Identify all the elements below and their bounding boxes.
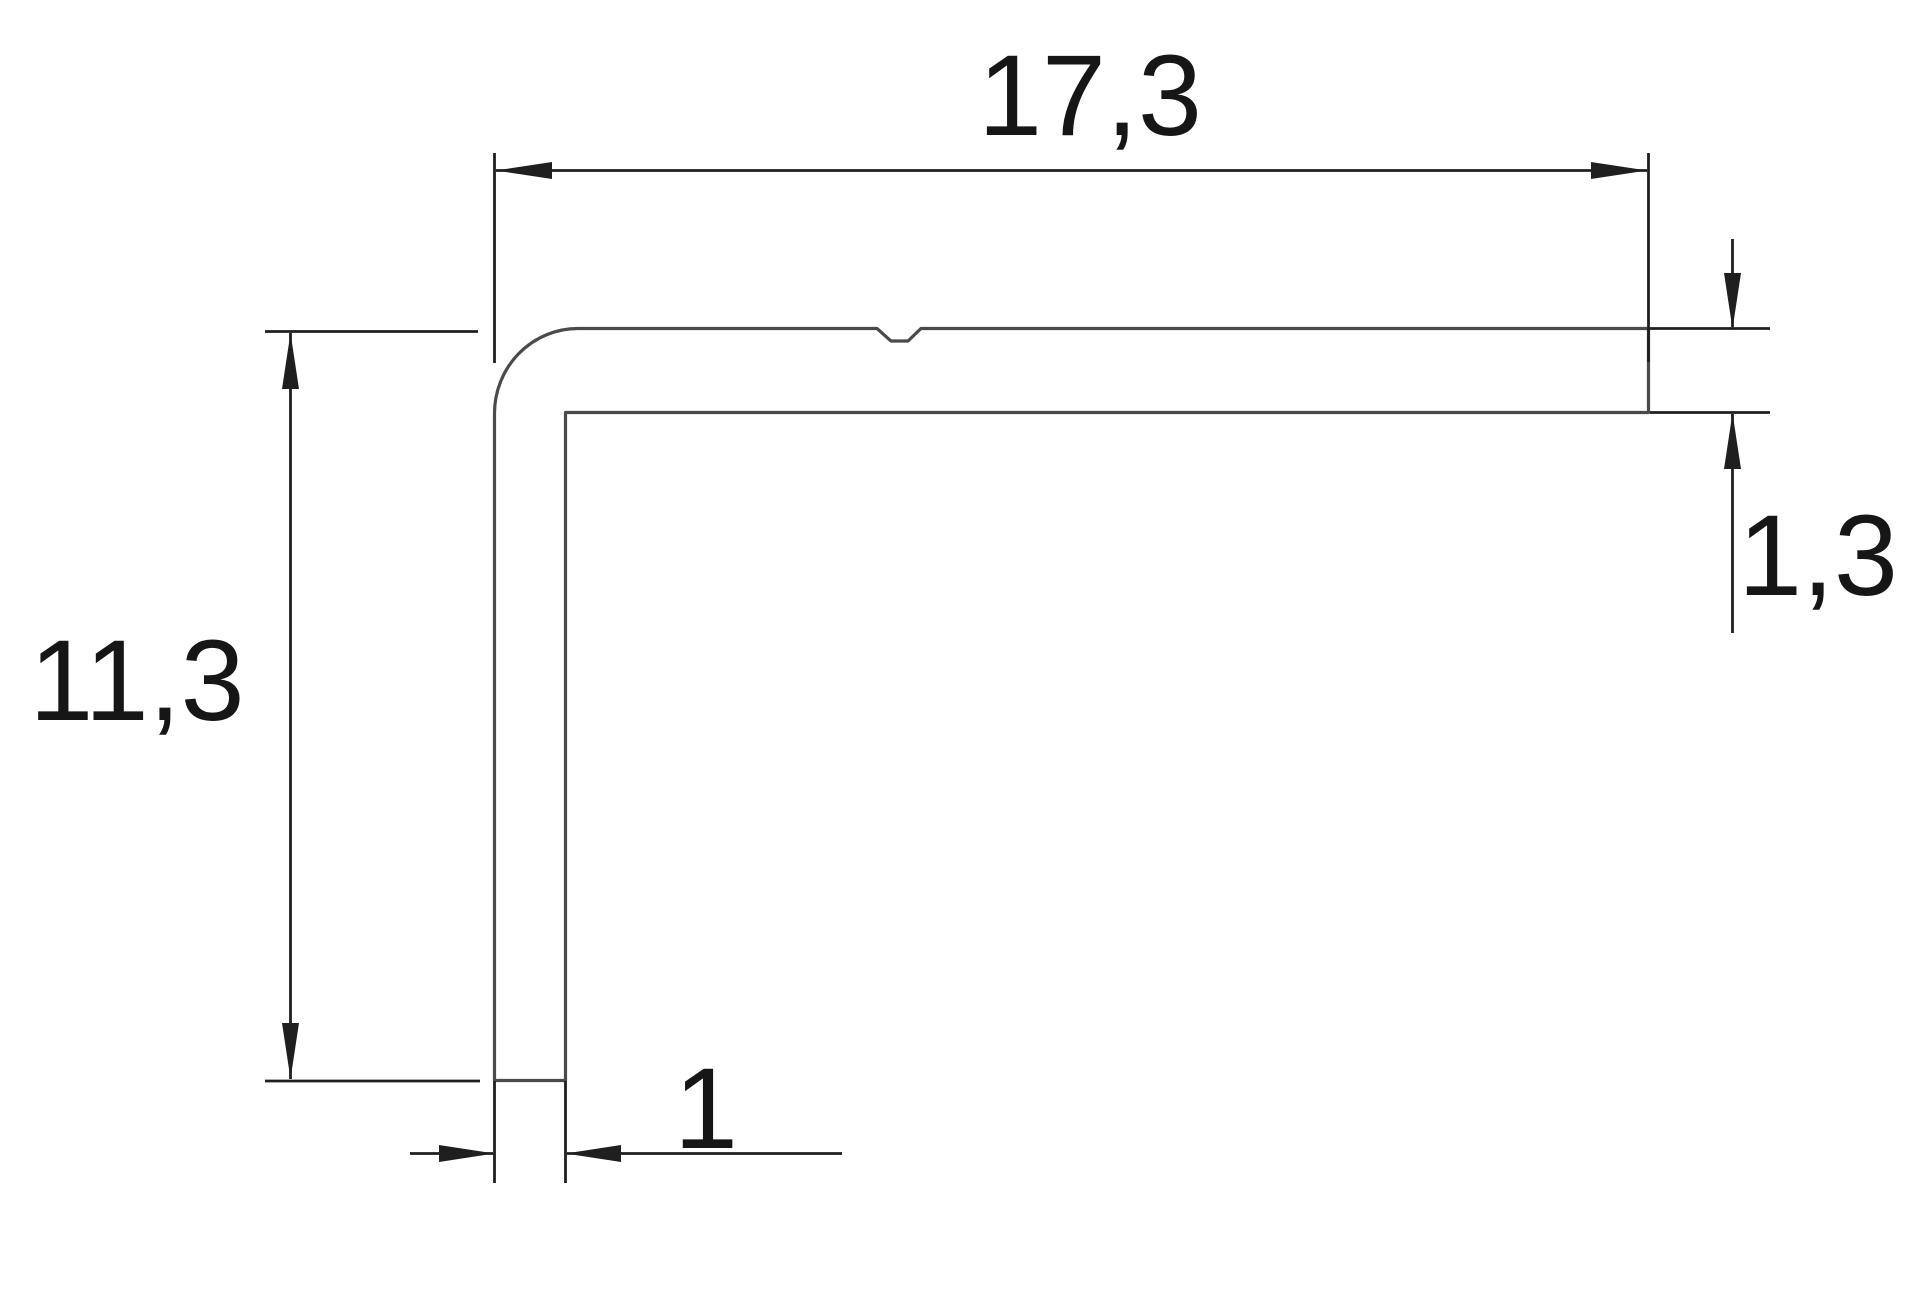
top-width-label: 17,3 bbox=[978, 32, 1202, 160]
left-height-label: 11,3 bbox=[29, 617, 244, 745]
bottom-thickness-label: 1 bbox=[674, 1045, 738, 1173]
technical-drawing: 17,3 11,3 1,3 1 bbox=[0, 0, 1920, 1299]
right-thickness-label: 1,3 bbox=[1738, 492, 1898, 620]
drawing-background bbox=[0, 0, 1920, 1299]
